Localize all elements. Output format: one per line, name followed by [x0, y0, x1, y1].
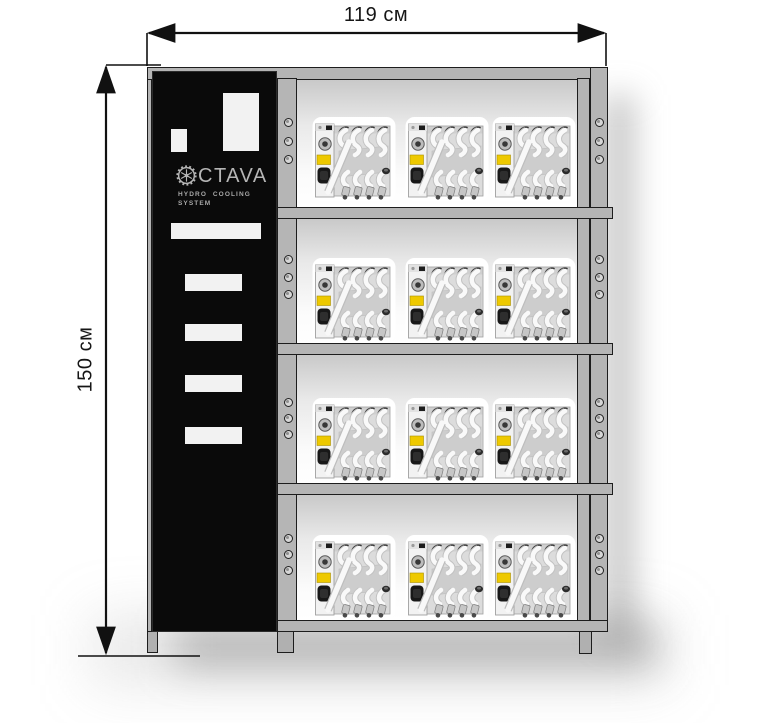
mounting-hole [595, 534, 604, 543]
mounting-hole [284, 155, 293, 164]
shelf-bar [277, 207, 613, 219]
panel-cutout [185, 274, 242, 291]
hydro-cooling-unit [405, 256, 489, 344]
panel-cutout [171, 129, 187, 152]
mounting-hole [595, 155, 604, 164]
mounting-hole [284, 414, 293, 423]
mounting-hole [284, 290, 293, 299]
hydro-cooling-unit [492, 396, 576, 484]
mounting-hole [284, 430, 293, 439]
hydro-cooling-unit [492, 256, 576, 344]
hydro-cooling-unit [405, 115, 489, 203]
panel-cutout [171, 223, 261, 239]
cabinet-foot [277, 631, 294, 653]
cabinet-foot [147, 631, 158, 653]
cabinet-shadow-right [604, 95, 634, 640]
mounting-hole [595, 137, 604, 146]
brand-logo: CTAVA [176, 165, 268, 186]
mounting-hole [284, 137, 293, 146]
hydro-cooling-unit [492, 115, 576, 203]
mounting-hole [595, 273, 604, 282]
mounting-hole [595, 566, 604, 575]
mounting-hole [595, 255, 604, 264]
hydro-cooling-unit [312, 256, 396, 344]
shelf-bar [277, 483, 613, 495]
mounting-hole [284, 398, 293, 407]
brand-subtitle: HYDRO COOLING SYSTEM [178, 190, 251, 208]
hydro-cooling-unit [492, 533, 576, 621]
brand-panel: CTAVA HYDRO COOLING SYSTEM [152, 71, 277, 632]
panel-cutout [223, 93, 259, 151]
mounting-hole [595, 414, 604, 423]
mounting-hole [595, 290, 604, 299]
mounting-hole [595, 430, 604, 439]
brand-logo-text: CTAVA [198, 166, 268, 186]
panel-cutout [185, 427, 242, 444]
mounting-hole [595, 118, 604, 127]
shelf-bar [277, 343, 613, 355]
width-dimension-label: 119 см [303, 4, 449, 27]
gear-logo-icon [176, 165, 197, 186]
mounting-hole [595, 398, 604, 407]
mounting-hole [595, 550, 604, 559]
mounting-hole [284, 273, 293, 282]
mounting-hole [284, 534, 293, 543]
mounting-hole [284, 118, 293, 127]
hydro-cooling-unit [312, 115, 396, 203]
hydro-cooling-unit [405, 396, 489, 484]
brand-subtitle-line2: SYSTEM [178, 199, 251, 208]
hydro-cooling-unit [405, 533, 489, 621]
mounting-hole [284, 255, 293, 264]
height-dimension-label: 150 см [75, 314, 98, 406]
mounting-hole [284, 550, 293, 559]
hydro-cooling-unit [312, 533, 396, 621]
hydro-cooling-rack-diagram: 119 см 150 см [0, 0, 757, 723]
mounting-hole [284, 566, 293, 575]
panel-cutout [185, 375, 242, 392]
cabinet-foot [579, 631, 592, 654]
panel-cutout [185, 324, 242, 341]
hydro-cooling-unit [312, 396, 396, 484]
brand-subtitle-line1: HYDRO COOLING [178, 190, 251, 199]
bottom-rail [277, 620, 608, 632]
